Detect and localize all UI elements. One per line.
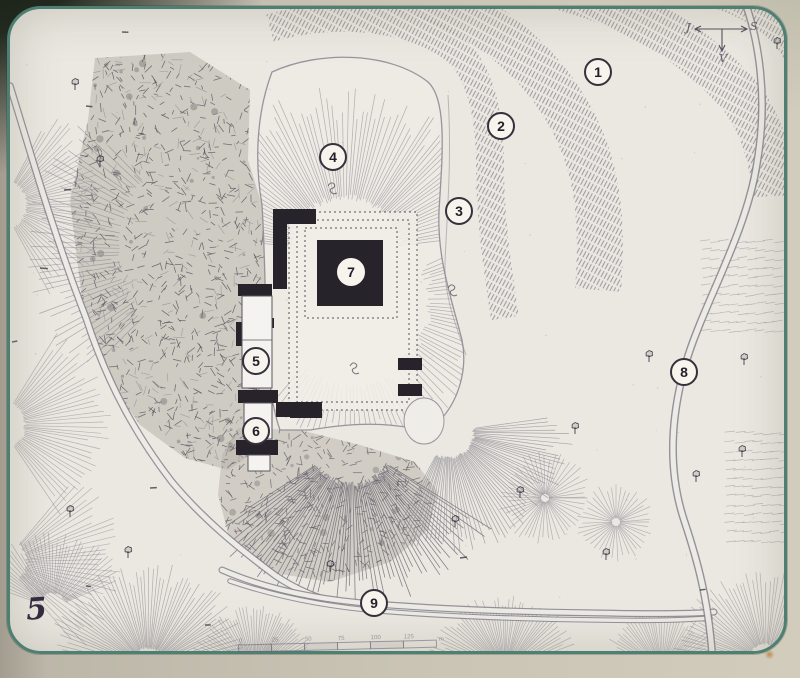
photo-of-castle-site-map: J S V 0255075100125m 5 123456789 xyxy=(0,0,800,678)
scale-bar-tick-label: 0 xyxy=(239,638,242,644)
scale-bar-segment: 50 xyxy=(304,642,338,651)
scale-bar-tick-label: 50 xyxy=(305,637,312,643)
compass-east-label: V xyxy=(719,52,727,65)
compass-north-label: S xyxy=(750,20,758,33)
scale-bar-unit: m xyxy=(439,636,444,647)
map-marker-1: 1 xyxy=(584,58,612,86)
compass-rose: J S V xyxy=(680,12,766,68)
terrain-drawing xyxy=(0,0,800,678)
compass-south-label: J xyxy=(686,21,690,34)
map-marker-8: 8 xyxy=(670,358,698,386)
scale-bar-segment: 25 xyxy=(271,643,305,652)
scale-bar-tick-label: 100 xyxy=(371,635,381,641)
scale-bar-tick-label: 75 xyxy=(338,636,345,642)
scale-bar-segment: 100 xyxy=(370,640,404,649)
map-marker-3: 3 xyxy=(445,197,473,225)
map-marker-9: 9 xyxy=(360,589,388,617)
map-marker-4: 4 xyxy=(319,143,347,171)
scale-bar-tick-label: 25 xyxy=(272,638,279,644)
stain-spot xyxy=(764,650,775,659)
map-marker-6: 6 xyxy=(242,417,270,445)
scale-bar-segment: 125 xyxy=(403,640,437,649)
map-marker-2: 2 xyxy=(487,112,515,140)
scale-bar-segment: 0 xyxy=(238,644,272,653)
figure-number-label: 5 xyxy=(25,591,48,627)
scale-bar-tick-label: 125 xyxy=(404,634,414,640)
scale-bar-segment: 75 xyxy=(337,641,371,650)
map-marker-5: 5 xyxy=(242,347,270,375)
map-marker-7: 7 xyxy=(337,258,365,286)
